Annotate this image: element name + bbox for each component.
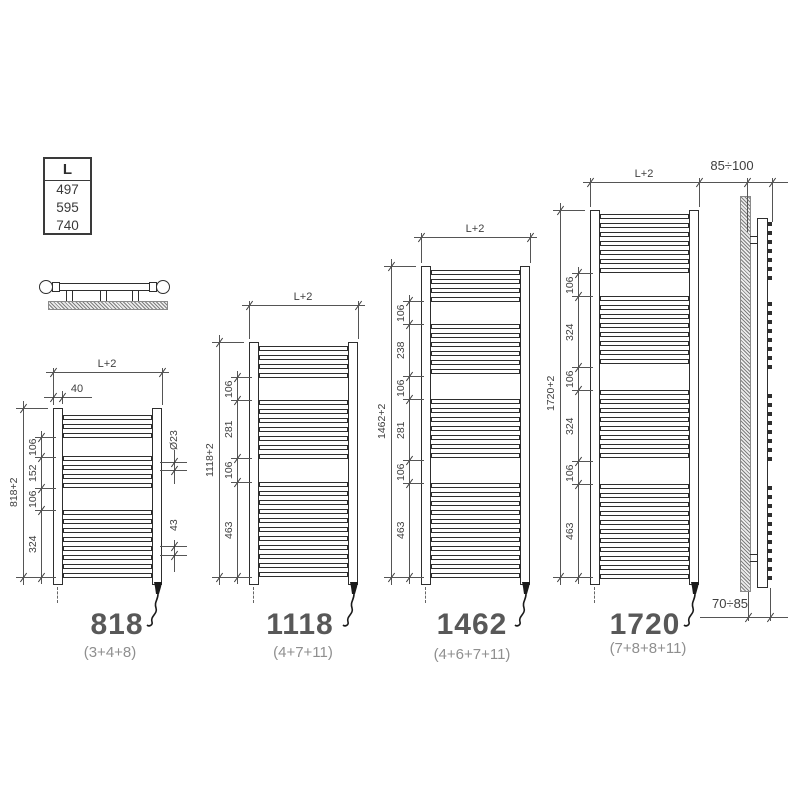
side-tube-end bbox=[767, 531, 772, 535]
side-tube-end bbox=[767, 486, 772, 490]
radiator-tube bbox=[63, 537, 152, 542]
radiator-tube bbox=[431, 297, 520, 302]
model-formula-818: (3+4+8) bbox=[45, 644, 175, 661]
extension-line bbox=[590, 178, 591, 207]
radiator-tube bbox=[63, 424, 152, 429]
length-value: 740 bbox=[45, 217, 90, 235]
side-tube-end bbox=[767, 329, 772, 333]
left-collector bbox=[421, 266, 431, 585]
centerline-dash bbox=[57, 587, 58, 603]
radiator-tube bbox=[431, 342, 520, 347]
side-tube-end bbox=[767, 302, 772, 306]
model-name-1118: 1118 bbox=[235, 608, 365, 642]
model-name-1462: 1462 bbox=[407, 608, 537, 642]
radiator-tube bbox=[600, 314, 689, 319]
width-dim-line bbox=[242, 305, 365, 306]
extension-line bbox=[530, 233, 531, 263]
overall-height-label: 1118+2 bbox=[203, 420, 217, 500]
side-tube-end bbox=[767, 513, 772, 517]
radiator-tube bbox=[431, 324, 520, 329]
radiator-tube bbox=[431, 369, 520, 374]
model-formula-1118: (4+7+11) bbox=[238, 644, 368, 661]
radiator-tube bbox=[431, 528, 520, 533]
overall-dim-line bbox=[391, 259, 392, 585]
radiator-tube bbox=[600, 332, 689, 337]
radiator-tube bbox=[431, 435, 520, 440]
radiator-tube bbox=[259, 346, 348, 351]
segment-dim-line bbox=[409, 295, 410, 584]
segment-dim-label: 106 bbox=[222, 450, 236, 490]
segment-dim-label: 106 bbox=[26, 479, 40, 519]
radiator-tube bbox=[63, 555, 152, 560]
segment-dim-line bbox=[578, 267, 579, 584]
radiator-tube bbox=[600, 399, 689, 404]
radiator-tube bbox=[600, 241, 689, 246]
width-dim-label: L+2 bbox=[82, 357, 132, 370]
model-formula-1462: (4+6+7+11) bbox=[407, 646, 537, 663]
radiator-tube bbox=[600, 341, 689, 346]
radiator-tube bbox=[600, 453, 689, 458]
side-tube-end bbox=[767, 347, 772, 351]
radiator-tube bbox=[259, 355, 348, 360]
side-tube-end bbox=[767, 403, 772, 407]
radiator-tube bbox=[259, 491, 348, 496]
radiator-tube bbox=[259, 545, 348, 550]
side-tube-end bbox=[767, 258, 772, 262]
radiator-tube bbox=[63, 483, 152, 488]
extension-line bbox=[35, 577, 56, 578]
segment-dim-label: 238 bbox=[394, 330, 408, 370]
width-dim-label: L+2 bbox=[619, 167, 669, 180]
side-tube-end bbox=[767, 457, 772, 461]
radiator-tube bbox=[431, 510, 520, 515]
side-tube-end bbox=[767, 338, 772, 342]
segment-dim-label: 106 bbox=[394, 368, 408, 408]
centerline-dash bbox=[594, 587, 595, 603]
segment-dim-label: 106 bbox=[563, 453, 577, 493]
radiator-tube bbox=[431, 564, 520, 569]
side-bracket bbox=[750, 554, 758, 555]
side-tube-end bbox=[767, 504, 772, 508]
segment-dim-label: 106 bbox=[563, 359, 577, 399]
side-tube-end bbox=[767, 540, 772, 544]
radiator-tube bbox=[600, 417, 689, 422]
radiator-tube bbox=[259, 563, 348, 568]
side-tube-end bbox=[767, 549, 772, 553]
radiator-tube bbox=[600, 520, 689, 525]
radiator-tube bbox=[63, 465, 152, 470]
side-tube-end bbox=[767, 249, 772, 253]
radiator-tube bbox=[63, 573, 152, 578]
radiator-tube bbox=[431, 417, 520, 422]
segment-dim-line bbox=[237, 371, 238, 584]
radiator-tube bbox=[259, 427, 348, 432]
radiator-tube bbox=[600, 574, 689, 579]
radiator-tube bbox=[431, 444, 520, 449]
radiator-tube bbox=[600, 359, 689, 364]
side-bracket bbox=[750, 243, 758, 244]
radiator-tube bbox=[259, 409, 348, 414]
side-tube-end bbox=[767, 421, 772, 425]
side-tube-end bbox=[767, 567, 772, 571]
radiator-tube bbox=[431, 426, 520, 431]
radiator-tube bbox=[63, 564, 152, 569]
radiator-tube bbox=[600, 323, 689, 328]
radiator-tube bbox=[431, 483, 520, 488]
radiator-tube bbox=[431, 270, 520, 275]
length-table-header: L bbox=[45, 159, 90, 181]
radiator-tube bbox=[431, 555, 520, 560]
left-collector bbox=[53, 408, 63, 585]
radiator-tube bbox=[259, 400, 348, 405]
plan-left-cap bbox=[39, 280, 53, 294]
radiator-tube bbox=[600, 232, 689, 237]
side-tube-end bbox=[767, 267, 772, 271]
side-tube-end bbox=[767, 311, 772, 315]
radiator-tube bbox=[600, 296, 689, 301]
centerline-dash bbox=[253, 587, 254, 603]
radiator-tube bbox=[600, 556, 689, 561]
radiator-tube bbox=[431, 492, 520, 497]
plan-wall bbox=[48, 301, 168, 310]
radiator-tube bbox=[259, 418, 348, 423]
radiator-tube bbox=[600, 444, 689, 449]
segment-dim-label: 106 bbox=[563, 265, 577, 305]
segment-dim-label: 106 bbox=[394, 452, 408, 492]
radiator-tube bbox=[431, 279, 520, 284]
extension-line bbox=[384, 266, 416, 267]
right-collector bbox=[348, 342, 358, 585]
segment-dim-label: 324 bbox=[563, 312, 577, 352]
side-tube-end bbox=[767, 222, 772, 226]
radiator-tube bbox=[600, 493, 689, 498]
overall-height-label: 818+2 bbox=[7, 452, 21, 532]
wall-distance-label: 85÷100 bbox=[700, 157, 764, 173]
radiator-tube bbox=[431, 288, 520, 293]
length-table: L 497 595 740 bbox=[43, 157, 92, 235]
width-dim-label: L+2 bbox=[278, 290, 328, 303]
extension-line bbox=[212, 342, 244, 343]
overall-height-label: 1462+2 bbox=[375, 381, 389, 461]
side-tube-end bbox=[767, 356, 772, 360]
radiator-tube bbox=[431, 573, 520, 578]
side-tube-end bbox=[767, 231, 772, 235]
radiator-tube bbox=[600, 214, 689, 219]
radiator-tube bbox=[259, 554, 348, 559]
radiator-tube bbox=[600, 268, 689, 273]
width-dim-line bbox=[46, 372, 169, 373]
radiator-tube bbox=[431, 360, 520, 365]
side-tube-end bbox=[767, 394, 772, 398]
radiator-tube bbox=[259, 527, 348, 532]
extension-line bbox=[249, 301, 250, 339]
centerline-dash bbox=[425, 587, 426, 603]
radiator-tube bbox=[600, 435, 689, 440]
extension-line bbox=[16, 408, 48, 409]
segment-dim-label: 106 bbox=[394, 293, 408, 333]
radiator-tube bbox=[431, 351, 520, 356]
extension-line bbox=[421, 233, 422, 263]
radiator-tube bbox=[63, 433, 152, 438]
segment-dim-label: 463 bbox=[222, 510, 236, 550]
radiator-tube bbox=[63, 456, 152, 461]
width-dim-label: L+2 bbox=[450, 222, 500, 235]
extension-line bbox=[553, 210, 585, 211]
radiator-tube bbox=[259, 454, 348, 459]
side-bracket bbox=[750, 236, 758, 237]
right-collector bbox=[520, 266, 530, 585]
radiator-tube bbox=[259, 536, 348, 541]
radiator-tube bbox=[259, 482, 348, 487]
radiator-tube bbox=[431, 408, 520, 413]
extension-line bbox=[231, 577, 252, 578]
right-collector bbox=[152, 408, 162, 585]
side-tube-end bbox=[767, 320, 772, 324]
overall-dim-line bbox=[219, 335, 220, 585]
model-formula-1720: (7+8+8+11) bbox=[583, 640, 713, 657]
overall-dim-line bbox=[560, 203, 561, 585]
length-value: 497 bbox=[45, 181, 90, 199]
segment-dim-label: 106 bbox=[222, 369, 236, 409]
side-tube-end bbox=[767, 412, 772, 416]
radiator-tube bbox=[600, 223, 689, 228]
extension-line bbox=[403, 577, 424, 578]
segment-dim-label: 281 bbox=[394, 410, 408, 450]
radiator-tube bbox=[63, 474, 152, 479]
extension-line bbox=[358, 301, 359, 339]
side-tube-end bbox=[767, 430, 772, 434]
side-tube-end bbox=[767, 522, 772, 526]
plan-right-cap bbox=[156, 280, 170, 294]
model-name-818: 818 bbox=[52, 608, 182, 642]
right-collector bbox=[689, 210, 699, 585]
extension-line bbox=[162, 368, 163, 405]
plan-tube bbox=[59, 283, 150, 291]
radiator-tube bbox=[600, 511, 689, 516]
side-tube-end bbox=[767, 276, 772, 280]
radiator-tube bbox=[600, 502, 689, 507]
radiator-tube bbox=[600, 350, 689, 355]
radiator-tube bbox=[431, 333, 520, 338]
radiator-tube bbox=[259, 518, 348, 523]
radiator-tube bbox=[259, 436, 348, 441]
side-tube-end bbox=[767, 576, 772, 580]
side-tube-end bbox=[767, 365, 772, 369]
radiator-tube bbox=[600, 547, 689, 552]
radiator-tube bbox=[259, 572, 348, 577]
model-name-1720: 1720 bbox=[580, 608, 710, 642]
overall-dim-line bbox=[23, 401, 24, 585]
width-dim-line bbox=[583, 182, 706, 183]
side-tube-end bbox=[767, 495, 772, 499]
offset-dim-label: 40 bbox=[65, 383, 89, 395]
radiator-tube bbox=[600, 259, 689, 264]
side-tube-end bbox=[767, 240, 772, 244]
radiator-tube bbox=[63, 546, 152, 551]
extension-line bbox=[572, 577, 593, 578]
left-collector bbox=[590, 210, 600, 585]
technical-drawing-canvas: L 497 595 740 106152106324 106281106463 … bbox=[0, 0, 800, 800]
radiator-tube bbox=[600, 529, 689, 534]
radiator-tube bbox=[600, 484, 689, 489]
side-tube-end bbox=[767, 448, 772, 452]
segment-dim-label: 281 bbox=[222, 409, 236, 449]
radiator-tube bbox=[431, 399, 520, 404]
radiator-tube bbox=[600, 305, 689, 310]
width-dim-line bbox=[414, 237, 537, 238]
radiator-tube bbox=[259, 500, 348, 505]
side-bracket bbox=[750, 561, 758, 562]
radiator-tube bbox=[63, 510, 152, 515]
radiator-tube bbox=[431, 537, 520, 542]
radiator-tube bbox=[431, 453, 520, 458]
segment-dim-label: 324 bbox=[563, 406, 577, 446]
pitch-dim-label: 43 bbox=[167, 508, 181, 542]
side-wall bbox=[740, 196, 751, 592]
radiator-tube bbox=[600, 426, 689, 431]
radiator-tube bbox=[600, 408, 689, 413]
radiator-tube bbox=[63, 415, 152, 420]
radiator-tube bbox=[63, 519, 152, 524]
radiator-tube bbox=[259, 364, 348, 369]
length-value: 595 bbox=[45, 199, 90, 217]
segment-dim-label: 463 bbox=[394, 510, 408, 550]
radiator-tube bbox=[600, 538, 689, 543]
left-collector bbox=[249, 342, 259, 585]
radiator-tube bbox=[431, 519, 520, 524]
side-tube-end bbox=[767, 439, 772, 443]
radiator-tube bbox=[600, 565, 689, 570]
overall-height-label: 1720+2 bbox=[544, 353, 558, 433]
radiator-tube bbox=[259, 509, 348, 514]
segment-dim-label: 324 bbox=[26, 524, 40, 564]
radiator-tube bbox=[600, 250, 689, 255]
radiator-tube bbox=[259, 373, 348, 378]
radiator-tube bbox=[431, 546, 520, 551]
radiator-tube bbox=[63, 528, 152, 533]
radiator-tube bbox=[600, 390, 689, 395]
radiator-tube bbox=[431, 501, 520, 506]
segment-dim-label: 463 bbox=[563, 511, 577, 551]
side-tube-end bbox=[767, 558, 772, 562]
radiator-tube bbox=[259, 445, 348, 450]
